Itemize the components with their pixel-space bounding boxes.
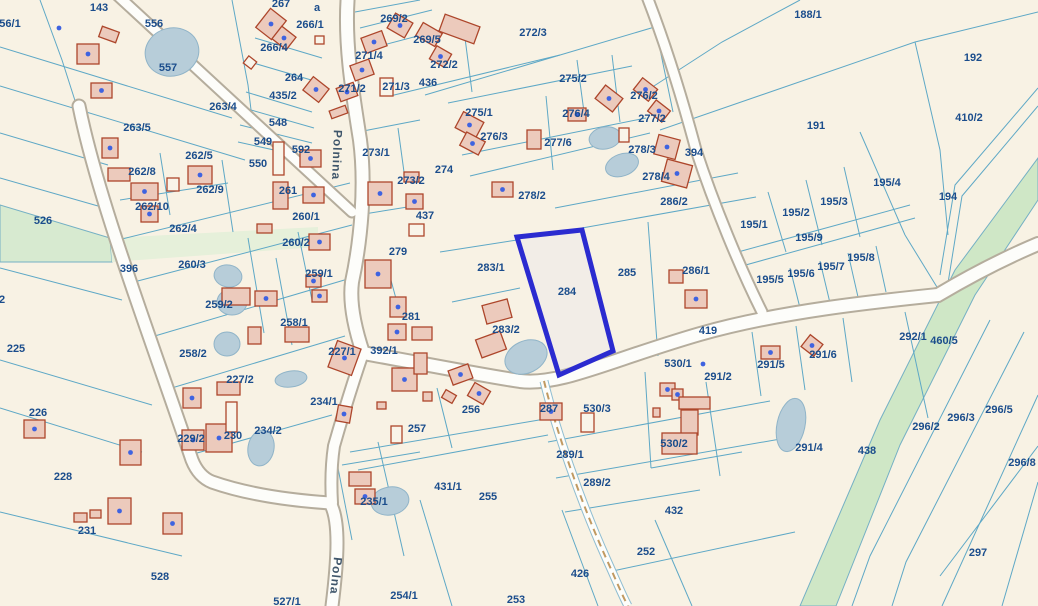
address-point-dot bbox=[402, 377, 407, 382]
building bbox=[423, 392, 432, 401]
address-point-dot bbox=[57, 26, 62, 31]
building bbox=[248, 327, 261, 344]
address-point-dot bbox=[282, 36, 287, 41]
building bbox=[90, 510, 101, 518]
address-point-dot bbox=[643, 87, 648, 92]
address-point-dot bbox=[701, 362, 706, 367]
building bbox=[476, 331, 507, 358]
address-point-dot bbox=[342, 356, 347, 361]
building bbox=[482, 299, 512, 324]
address-point-dot bbox=[395, 330, 400, 335]
building bbox=[217, 382, 240, 395]
building bbox=[391, 426, 402, 443]
building bbox=[416, 23, 443, 47]
address-point-dot bbox=[412, 199, 417, 204]
building bbox=[285, 327, 309, 342]
building bbox=[222, 288, 250, 305]
address-point-dot bbox=[117, 509, 122, 514]
building bbox=[527, 130, 541, 149]
building bbox=[167, 178, 179, 191]
address-point-dot bbox=[317, 240, 322, 245]
building bbox=[662, 433, 697, 454]
address-point-dot bbox=[665, 145, 670, 150]
address-point-dot bbox=[198, 173, 203, 178]
address-point-dot bbox=[657, 109, 662, 114]
address-point-dot bbox=[32, 427, 37, 432]
building bbox=[315, 36, 324, 44]
address-point-dot bbox=[170, 521, 175, 526]
building bbox=[226, 402, 237, 432]
building bbox=[74, 513, 87, 522]
address-point-dot bbox=[665, 387, 670, 392]
address-point-dot bbox=[217, 436, 222, 441]
building bbox=[681, 410, 698, 435]
building bbox=[669, 270, 683, 283]
address-point-dot bbox=[675, 171, 680, 176]
building bbox=[243, 56, 256, 69]
building bbox=[412, 327, 432, 340]
address-point-dot bbox=[810, 343, 815, 348]
building bbox=[377, 402, 386, 409]
address-point-dot bbox=[147, 212, 152, 217]
address-point-dot bbox=[458, 372, 463, 377]
address-point-dot bbox=[477, 391, 482, 396]
address-point-dot bbox=[360, 68, 365, 73]
building bbox=[273, 182, 288, 209]
address-point-dot bbox=[314, 87, 319, 92]
building bbox=[409, 224, 424, 236]
address-point-dot bbox=[269, 22, 274, 27]
building bbox=[99, 26, 120, 42]
building bbox=[349, 472, 371, 486]
address-point-dot bbox=[378, 191, 383, 196]
address-point-dot bbox=[438, 54, 443, 59]
building bbox=[439, 14, 480, 44]
building bbox=[581, 413, 594, 432]
address-point-dot bbox=[768, 350, 773, 355]
building bbox=[108, 168, 130, 181]
map-canvas[interactable] bbox=[0, 0, 1038, 606]
address-point-dot bbox=[396, 305, 401, 310]
building bbox=[619, 128, 629, 142]
address-point-dot bbox=[311, 193, 316, 198]
address-point-dot bbox=[470, 141, 475, 146]
building bbox=[414, 353, 427, 374]
address-point-dot bbox=[342, 412, 347, 417]
water-layer bbox=[140, 22, 811, 518]
address-point-dot bbox=[376, 272, 381, 277]
address-point-dot bbox=[363, 494, 368, 499]
address-point-dot bbox=[345, 90, 350, 95]
building bbox=[653, 408, 660, 417]
address-point-dot bbox=[190, 396, 195, 401]
address-point-dot bbox=[108, 146, 113, 151]
address-point-dot bbox=[549, 409, 554, 414]
cadastral-map[interactable]: 14356/1556557267a266/1266/4264435/2263/4… bbox=[0, 0, 1038, 606]
building bbox=[679, 397, 710, 409]
address-point-dot bbox=[398, 23, 403, 28]
address-point-dot bbox=[694, 297, 699, 302]
buildings-layer bbox=[24, 8, 823, 534]
address-point-dot bbox=[99, 88, 104, 93]
address-point-dot bbox=[311, 279, 316, 284]
address-point-dot bbox=[317, 294, 322, 299]
address-point-dot bbox=[308, 156, 313, 161]
building bbox=[329, 105, 348, 118]
address-point-dot bbox=[575, 112, 580, 117]
address-point-dot bbox=[264, 296, 269, 301]
building bbox=[404, 172, 419, 182]
address-point-dot bbox=[191, 438, 196, 443]
building bbox=[257, 224, 272, 233]
address-point-dot bbox=[142, 189, 147, 194]
address-point-dot bbox=[607, 96, 612, 101]
building bbox=[442, 390, 457, 404]
building bbox=[380, 78, 393, 96]
address-point-dot bbox=[467, 123, 472, 128]
address-point-dot bbox=[128, 450, 133, 455]
address-point-dot bbox=[372, 40, 377, 45]
building bbox=[273, 142, 284, 175]
address-point-dot bbox=[675, 392, 680, 397]
address-point-dot bbox=[500, 187, 505, 192]
address-point-dot bbox=[86, 52, 91, 57]
